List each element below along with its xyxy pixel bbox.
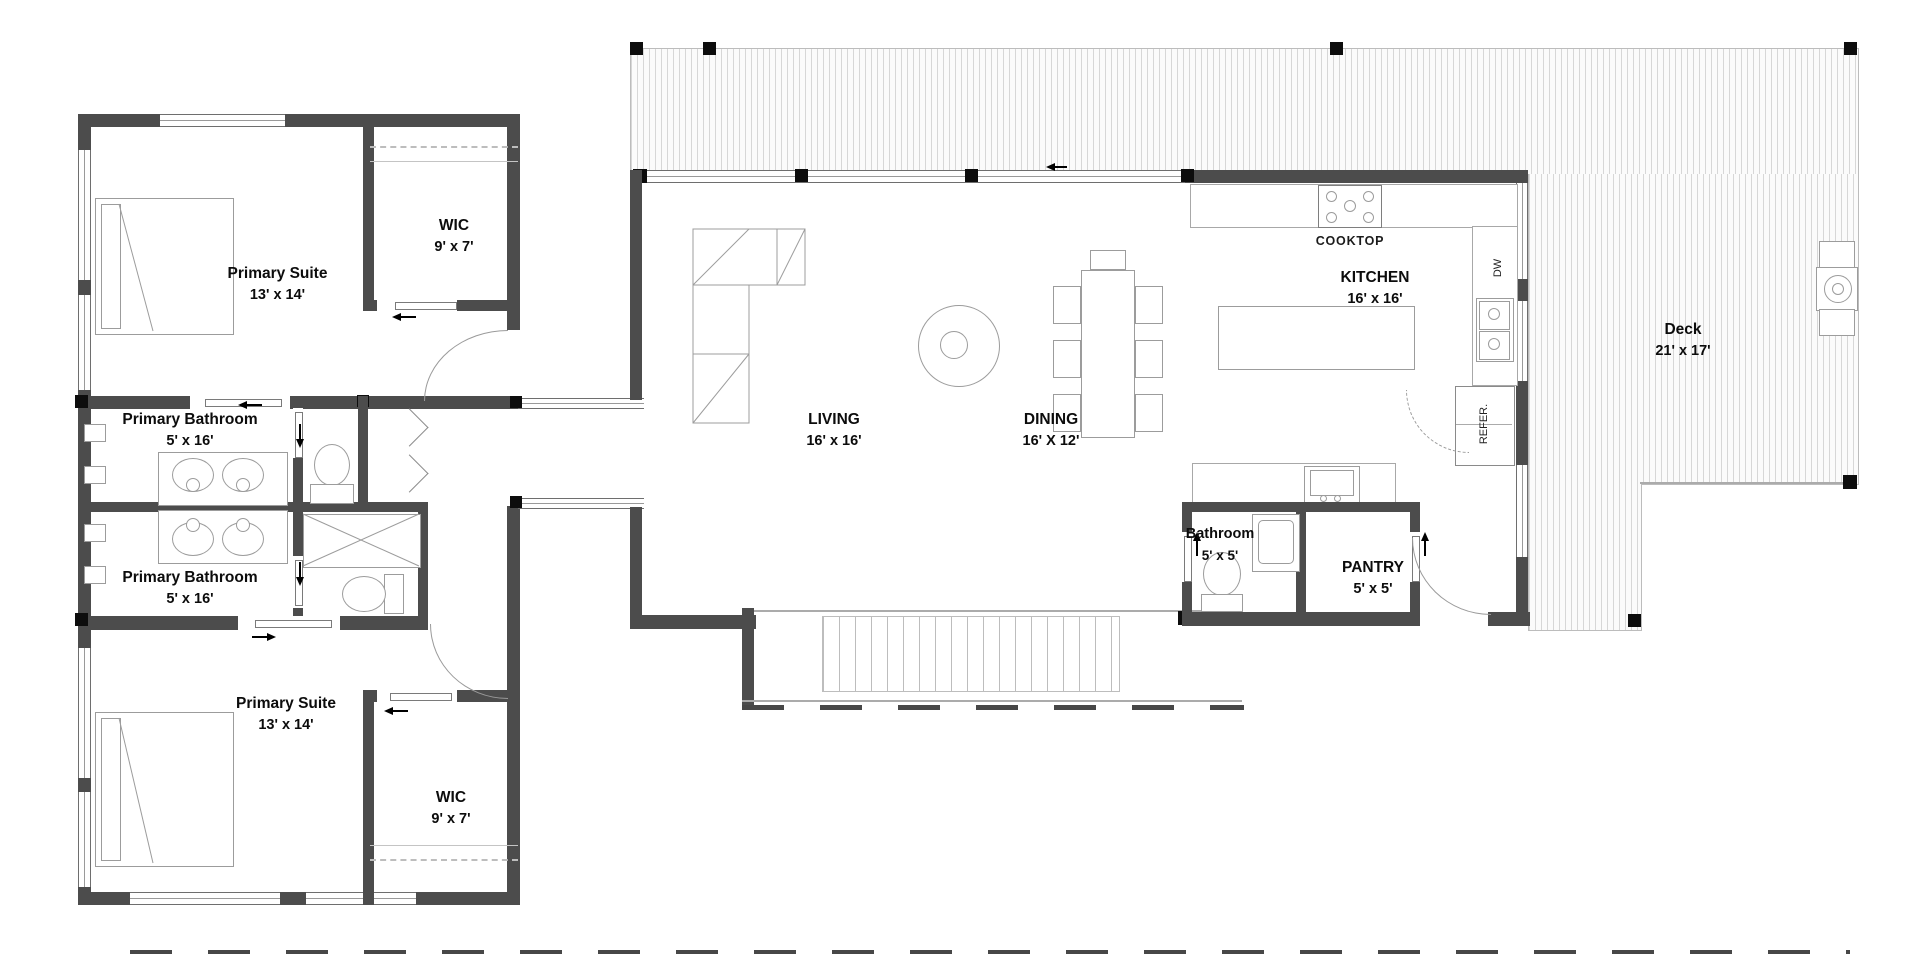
- dining-chair: [1135, 394, 1163, 432]
- suite2-door-arrow-icon: [252, 636, 268, 638]
- wall-post: [75, 395, 88, 408]
- window-wall-living: [642, 170, 1185, 183]
- sink-drain: [1488, 338, 1500, 350]
- corridor-post: [510, 396, 522, 408]
- deck-surface-lower: [1528, 484, 1642, 631]
- bath1-toilet-door-arrow-icon: [299, 424, 301, 440]
- sink-drain: [1488, 308, 1500, 320]
- corridor-wall-top: [518, 398, 644, 409]
- window-bottom-suite-south: [130, 892, 280, 905]
- room-label-kitchen: KITCHEN 16' x 16': [1310, 266, 1440, 311]
- cooktop-label: COOKTOP: [1295, 234, 1405, 248]
- patio-slider-arrow-icon: [1054, 166, 1067, 168]
- sectional-sofa: [692, 228, 806, 424]
- bath1-faucet-left: [186, 478, 200, 492]
- roof-overhang-dashed-line: [130, 950, 1850, 954]
- room-label-primary-suite-bottom: Primary Suite 13' x 14': [186, 692, 386, 737]
- bath2-shower-x: [303, 514, 419, 566]
- roof-post: [630, 42, 643, 55]
- grill-burner-center: [1832, 283, 1844, 295]
- bath-wall-fixture: [84, 466, 106, 484]
- window-top-suite-west: [78, 150, 91, 280]
- dining-chair: [1053, 340, 1081, 378]
- bifold-closet-door-icon: [390, 408, 428, 446]
- prep-sink-tap: [1320, 495, 1327, 502]
- deck-post: [1628, 614, 1641, 627]
- cooktop-burner: [1363, 191, 1374, 202]
- wic1-closet-rod-dashed: [370, 146, 518, 148]
- cooktop-burner-center: [1344, 200, 1356, 212]
- wall-left-wing-right-lower: [507, 630, 520, 905]
- dining-chair: [1053, 286, 1081, 324]
- refrigerator-label: REFER.: [1478, 394, 1490, 454]
- wall-kitchen-north: [1185, 170, 1528, 183]
- dishwasher-label: DW: [1492, 248, 1504, 288]
- stair-railing-dashes: [742, 705, 1244, 710]
- wall-bathroom-pantry-bottom: [1182, 612, 1420, 626]
- suite2-sliding-door: [255, 620, 332, 628]
- room-label-wic-top: WIC 9' x 7': [395, 214, 513, 259]
- wic1-sliding-door: [395, 302, 457, 310]
- prep-sink-tap: [1334, 495, 1341, 502]
- wic1-door-arrow-icon: [400, 316, 416, 318]
- wic2-sliding-door: [390, 693, 452, 701]
- window-top-suite-north: [160, 114, 285, 127]
- bath2-toilet-tank: [384, 574, 404, 614]
- window-wic2-south: [306, 892, 416, 905]
- bath1-faucet-right: [236, 478, 250, 492]
- bath1-toilet-bowl: [314, 444, 350, 486]
- window-top-suite-west2: [78, 295, 91, 390]
- deck-edge: [1640, 482, 1857, 484]
- powder-vanity-sink: [1258, 520, 1294, 564]
- mullion-post: [795, 169, 808, 182]
- roof-post: [1330, 42, 1343, 55]
- kitchen-counter-south: [1192, 463, 1396, 506]
- room-label-primary-suite-top: Primary Suite 13' x 14': [180, 262, 375, 307]
- wall-living-south-left: [630, 615, 756, 629]
- room-label-living: LIVING 16' x 16': [770, 408, 898, 453]
- wall-post: [75, 613, 88, 626]
- cooktop-burner: [1326, 212, 1337, 223]
- room-label-deck: Deck 21' x 17': [1618, 318, 1748, 363]
- bath2-faucet-right: [236, 518, 250, 532]
- bath2-toilet-bowl: [342, 576, 386, 612]
- room-label-primary-bath-top: Primary Bathroom 5' x 16': [95, 408, 285, 453]
- mullion-post: [1181, 169, 1194, 182]
- roof-post: [1844, 42, 1857, 55]
- dining-chair: [1135, 286, 1163, 324]
- staircase-treads: [822, 616, 1120, 692]
- floor-plan: Primary Suite 13' x 14' WIC 9' x 7' Prim…: [0, 0, 1920, 970]
- bath1-toilet-tank: [310, 484, 354, 504]
- suite2-entry-door-arc: [430, 624, 508, 699]
- kitchen-hall-door-dashed-arc: [1406, 390, 1469, 453]
- prep-sink-basin: [1310, 470, 1354, 496]
- deck-post: [1843, 475, 1857, 489]
- cooktop-burner: [1363, 212, 1374, 223]
- wall-south-right-seg: [1488, 612, 1530, 626]
- suite1-door-arrow-icon: [246, 404, 262, 406]
- wall-living-west-lower: [630, 507, 642, 618]
- round-chair-center: [940, 331, 968, 359]
- room-label-primary-bath-bottom: Primary Bathroom 5' x 16': [95, 566, 285, 611]
- cooktop-burner: [1326, 191, 1337, 202]
- powder-toilet-tank: [1201, 594, 1243, 612]
- bath2-faucet-left: [186, 518, 200, 532]
- suite1-entry-door-arc: [424, 330, 508, 401]
- room-label-wic-bottom: WIC 9' x 7': [392, 786, 510, 831]
- grill-top: [1819, 241, 1855, 269]
- window-bottom-suite-west: [78, 648, 91, 778]
- wic1-closet-shelf: [370, 161, 518, 162]
- wic2-door-arrow-icon: [392, 710, 408, 712]
- wall-living-west-upper: [630, 170, 642, 400]
- wic2-closet-shelf: [370, 845, 518, 846]
- roof-post: [703, 42, 716, 55]
- bifold-closet-door-icon: [390, 454, 428, 492]
- hall-deck-door-arc: [1412, 538, 1491, 615]
- mullion-post: [965, 169, 978, 182]
- stair-wall-left: [742, 608, 754, 710]
- kitchen-island: [1218, 306, 1415, 370]
- dining-chair: [1135, 340, 1163, 378]
- wall-east-fridge: [1516, 381, 1528, 465]
- wall-left-wing-right-mid: [507, 506, 520, 618]
- stair-railing-line: [742, 700, 1242, 702]
- room-label-pantry: PANTRY 5' x 5': [1326, 556, 1420, 601]
- dining-chair-head: [1090, 250, 1126, 270]
- corridor-post: [510, 496, 522, 508]
- wall-left-wing-top: [78, 114, 520, 127]
- bath-wall-fixture: [84, 524, 106, 542]
- room-label-bathroom: Bathroom 5' x 5': [1182, 524, 1258, 566]
- corridor-wall-bottom: [518, 498, 644, 509]
- window-hall-east: [1516, 465, 1528, 557]
- bath2-toilet-door-arrow-icon: [299, 562, 301, 578]
- stair-opening-edge: [754, 610, 1240, 612]
- roof-overhang-hatch: [630, 48, 1859, 175]
- grill-bottom: [1819, 309, 1855, 336]
- wall-bath1-closet: [358, 396, 368, 512]
- wic2-closet-rod-dashed: [370, 859, 518, 861]
- room-label-dining: DINING 16' X 12': [987, 408, 1115, 453]
- window-bottom-suite-west2: [78, 792, 91, 887]
